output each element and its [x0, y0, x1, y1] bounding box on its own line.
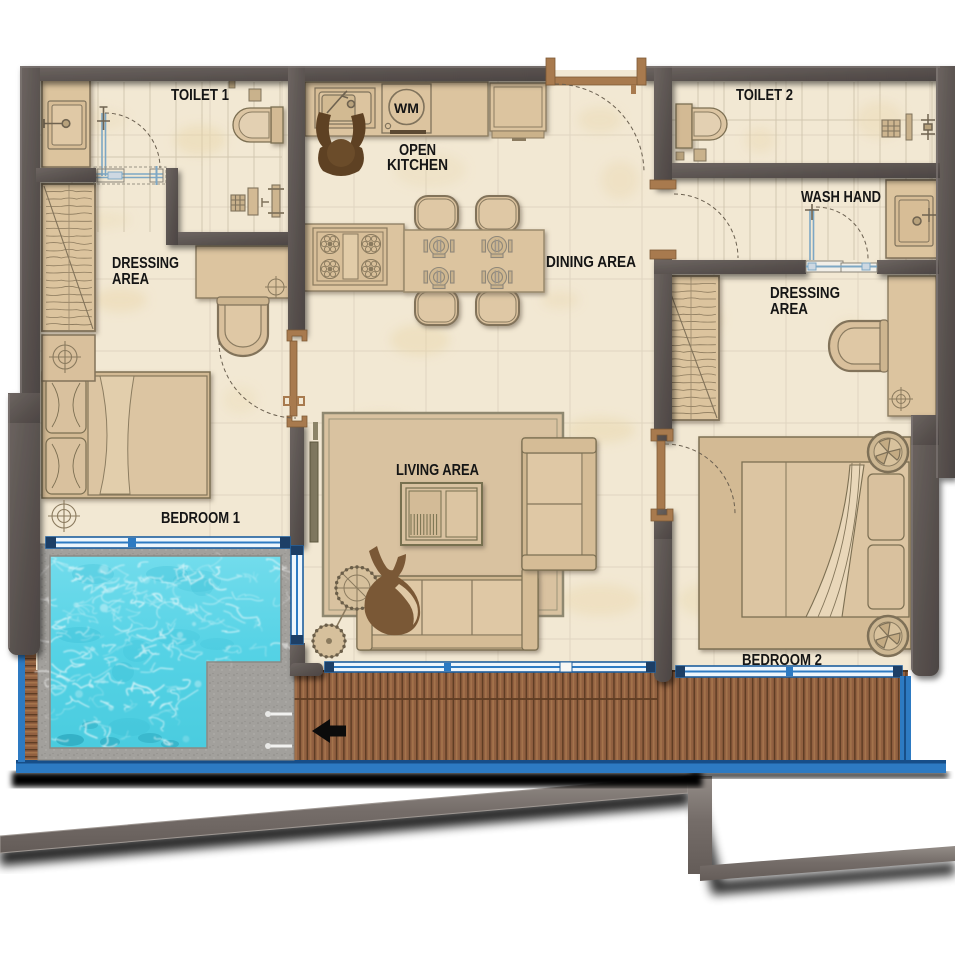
svg-text:DINING AREA: DINING AREA: [546, 254, 636, 271]
svg-text:KITCHEN: KITCHEN: [387, 157, 448, 174]
svg-text:WM: WM: [394, 100, 419, 116]
svg-text:AREA: AREA: [770, 301, 808, 318]
svg-text:DRESSING: DRESSING: [112, 255, 179, 272]
svg-text:TOILET 1: TOILET 1: [171, 87, 229, 104]
svg-text:TOILET 2: TOILET 2: [736, 87, 793, 104]
svg-text:LIVING AREA: LIVING AREA: [396, 462, 479, 479]
svg-text:BEDROOM 2: BEDROOM 2: [742, 652, 822, 669]
svg-text:WASH HAND: WASH HAND: [801, 189, 881, 206]
svg-text:BEDROOM 1: BEDROOM 1: [161, 510, 240, 527]
svg-text:AREA: AREA: [112, 271, 149, 288]
svg-text:DRESSING: DRESSING: [770, 285, 840, 302]
